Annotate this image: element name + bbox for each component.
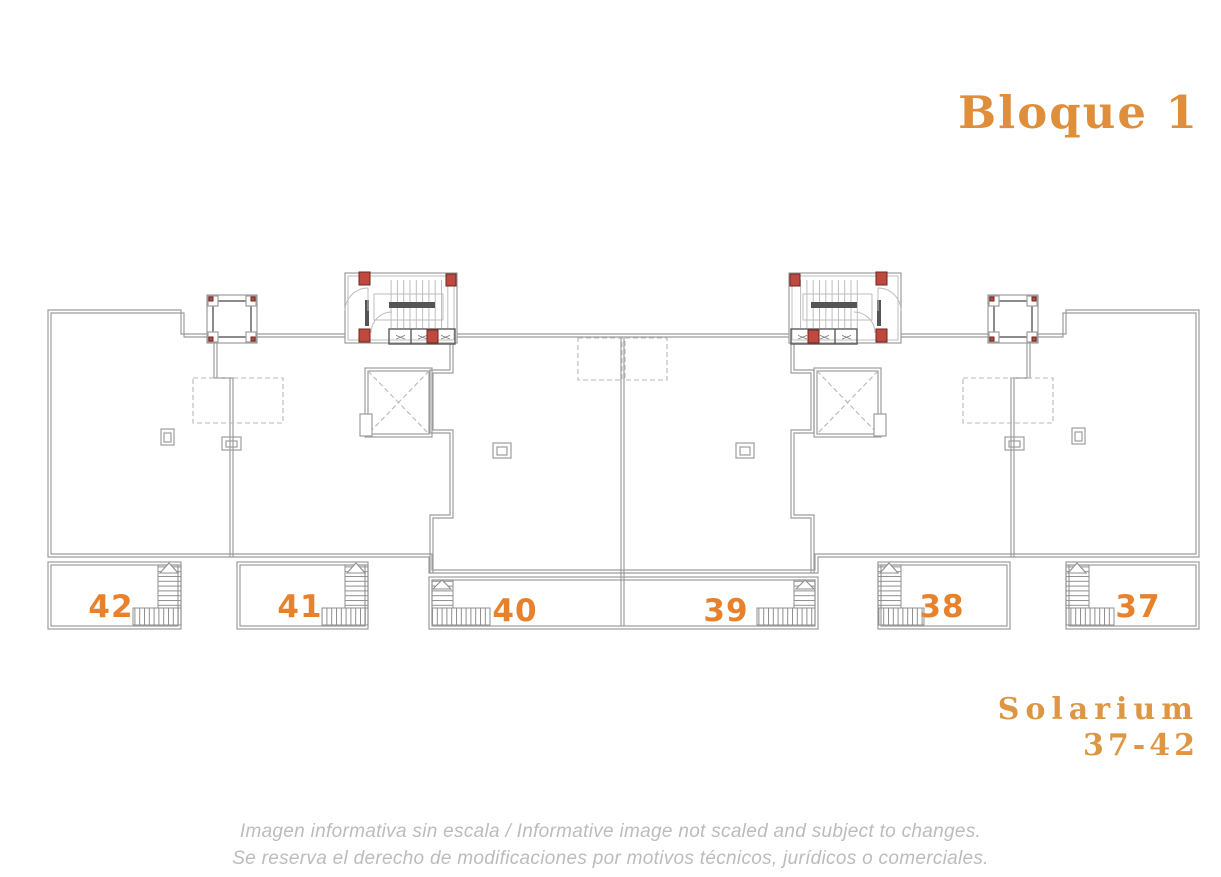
stair-landing [811, 302, 857, 308]
dashed-skylights [193, 338, 1053, 423]
unit-divider-walls [214, 338, 1030, 626]
column [446, 274, 456, 286]
solarium-label-line2: 37-42 [998, 728, 1199, 764]
pergola-left [207, 295, 257, 343]
stair-tower-left: >< >< >< [345, 272, 457, 344]
column [359, 272, 370, 285]
floorplan-page: Bloque 1 [0, 0, 1221, 877]
disclaimer-line2: Se reserva el derecho de modificaciones … [0, 845, 1221, 872]
stair-landing [389, 302, 435, 308]
unit-number-40: 40 [492, 593, 537, 629]
column [359, 329, 370, 342]
column [876, 272, 887, 285]
column [808, 330, 819, 343]
unit-number-37: 37 [1115, 589, 1160, 625]
stair-tower-right: >< >< >< [789, 272, 901, 344]
column [790, 274, 800, 286]
pergola-right [988, 295, 1038, 343]
column [427, 330, 438, 343]
solarium-label-line1: Solarium [998, 692, 1199, 728]
disclaimer: Imagen informativa sin escala / Informat… [0, 818, 1221, 872]
unit-number-41: 41 [277, 589, 322, 625]
unit-number-38: 38 [919, 589, 964, 625]
shaft-right [814, 368, 886, 437]
roof-drains [161, 428, 1085, 458]
unit-number-39: 39 [703, 593, 748, 629]
solarium-label: Solarium 37-42 [998, 692, 1199, 764]
disclaimer-line1: Imagen informativa sin escala / Informat… [0, 818, 1221, 845]
shaft-left [360, 368, 432, 437]
column [876, 329, 887, 342]
unit-number-42: 42 [88, 589, 133, 625]
